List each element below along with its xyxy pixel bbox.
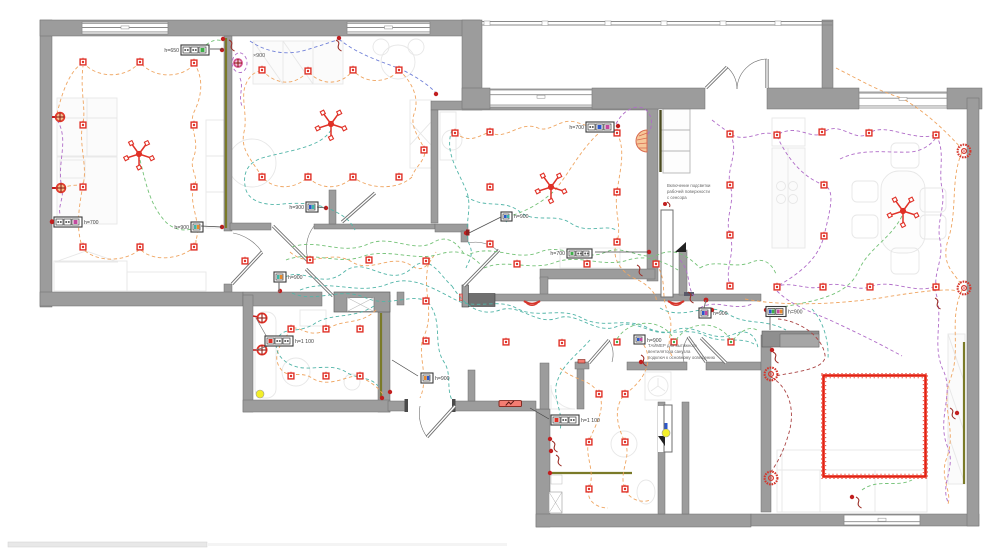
svg-text:рабочей поверхности: рабочей поверхности [667, 189, 710, 194]
svg-text:h=1 100: h=1 100 [295, 339, 314, 345]
svg-text:h=900: h=900 [435, 376, 450, 382]
svg-text:h=900: h=900 [713, 311, 728, 317]
svg-text:h=900: h=900 [289, 205, 304, 211]
svg-text:Включение подсветки: Включение подсветки [667, 183, 711, 188]
svg-text:вентилятора санузла: вентилятора санузла [648, 349, 691, 354]
svg-text:подключ к основному освещению: подключ к основному освещению [648, 355, 716, 360]
svg-text:h=700: h=700 [569, 125, 584, 131]
svg-text:ТАЙМЕР для вытяжного: ТАЙМЕР для вытяжного [648, 343, 697, 348]
svg-text:с сенсора: с сенсора [667, 195, 687, 200]
svg-text:h=700: h=700 [84, 220, 99, 226]
svg-text:×900: ×900 [253, 53, 265, 59]
svg-text:h=900: h=900 [514, 214, 529, 220]
svg-text:h=700: h=700 [550, 251, 565, 257]
svg-text:h=1 100: h=1 100 [581, 418, 600, 424]
svg-text:h=650: h=650 [164, 48, 179, 54]
svg-text:h=900: h=900 [788, 310, 803, 316]
svg-text:h=900: h=900 [288, 275, 303, 281]
svg-text:h=900: h=900 [174, 225, 189, 231]
